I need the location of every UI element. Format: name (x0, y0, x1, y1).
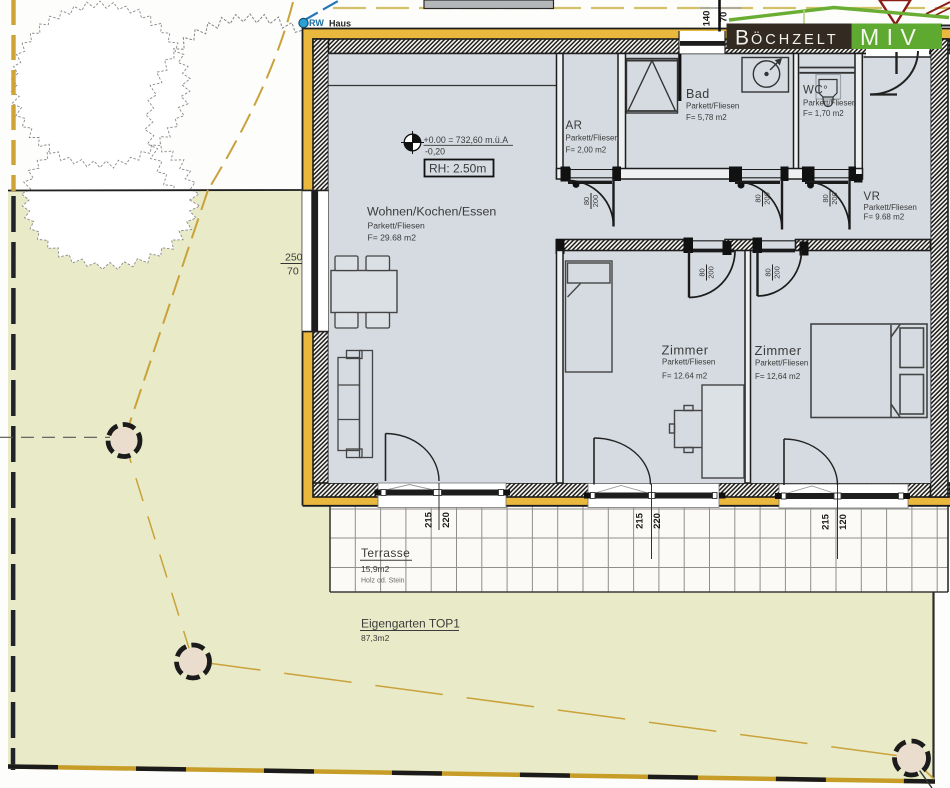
svg-text:WC°: WC° (803, 85, 828, 97)
svg-text:-0,20: -0,20 (425, 147, 445, 157)
svg-text:80: 80 (764, 268, 773, 276)
svg-text:200: 200 (707, 266, 716, 279)
svg-text:Haus: Haus (329, 19, 351, 29)
svg-text:Holz od. Stein: Holz od. Stein (361, 578, 405, 585)
svg-text:220: 220 (652, 513, 663, 529)
svg-text:70: 70 (287, 266, 299, 278)
svg-text:F= 29.68 m2: F= 29.68 m2 (368, 233, 417, 243)
svg-text:Parkett/Fliesen: Parkett/Fliesen (686, 102, 739, 111)
svg-text:F= 1,70 m2: F= 1,70 m2 (803, 109, 844, 118)
svg-text:120: 120 (838, 514, 849, 530)
svg-text:AR: AR (566, 120, 583, 132)
svg-text:200: 200 (830, 192, 839, 205)
svg-text:80: 80 (582, 197, 591, 205)
svg-text:80: 80 (754, 194, 763, 202)
svg-text:200: 200 (591, 195, 600, 208)
svg-text:220: 220 (441, 512, 452, 528)
svg-text:215: 215 (424, 511, 435, 528)
svg-text:F= 5,78 m2: F= 5,78 m2 (686, 113, 727, 122)
svg-text:Bad: Bad (686, 87, 710, 101)
svg-text:F= 2,00 m2: F= 2,00 m2 (566, 146, 607, 155)
svg-text:RH: 2.50m: RH: 2.50m (429, 162, 486, 176)
svg-text:F= 9.68 m2: F= 9.68 m2 (864, 213, 905, 222)
svg-text:F= 12.64 m2: F= 12.64 m2 (662, 372, 708, 381)
svg-text:Zimmer: Zimmer (755, 343, 802, 358)
svg-text:Zimmer: Zimmer (662, 343, 709, 358)
svg-text:Wohnen/Kochen/Essen: Wohnen/Kochen/Essen (367, 205, 496, 219)
svg-text:215: 215 (635, 512, 646, 529)
svg-text:MIV: MIV (860, 24, 923, 50)
svg-text:80: 80 (821, 194, 830, 202)
svg-text:200: 200 (773, 266, 782, 279)
svg-text:140: 140 (702, 11, 713, 27)
svg-text:Parkett/Fliesen: Parkett/Fliesen (755, 359, 808, 368)
svg-text:Parkett/Fliesen: Parkett/Fliesen (368, 221, 426, 231)
svg-text:200: 200 (763, 192, 772, 205)
svg-text:Terrasse: Terrasse (361, 546, 410, 560)
svg-text:+0.00 = 732,60 m.ü.A: +0.00 = 732,60 m.ü.A (424, 135, 509, 145)
svg-text:80: 80 (698, 268, 707, 276)
svg-text:250: 250 (285, 252, 303, 264)
svg-text:RW: RW (309, 18, 324, 28)
svg-text:87,3m2: 87,3m2 (361, 633, 390, 643)
svg-text:Eigengarten TOP1: Eigengarten TOP1 (361, 617, 460, 631)
svg-text:Parkett/Fliesen: Parkett/Fliesen (803, 99, 856, 108)
svg-text:Parkett/Fliesen: Parkett/Fliesen (662, 358, 715, 367)
svg-text:VR: VR (864, 191, 881, 203)
svg-text:15,9m2: 15,9m2 (361, 564, 390, 574)
svg-text:Parkett/Fliesen: Parkett/Fliesen (864, 203, 917, 212)
svg-text:Parkett/Fliesen: Parkett/Fliesen (566, 134, 619, 143)
svg-text:215: 215 (821, 513, 832, 530)
svg-text:F= 12,64 m2: F= 12,64 m2 (755, 372, 801, 381)
